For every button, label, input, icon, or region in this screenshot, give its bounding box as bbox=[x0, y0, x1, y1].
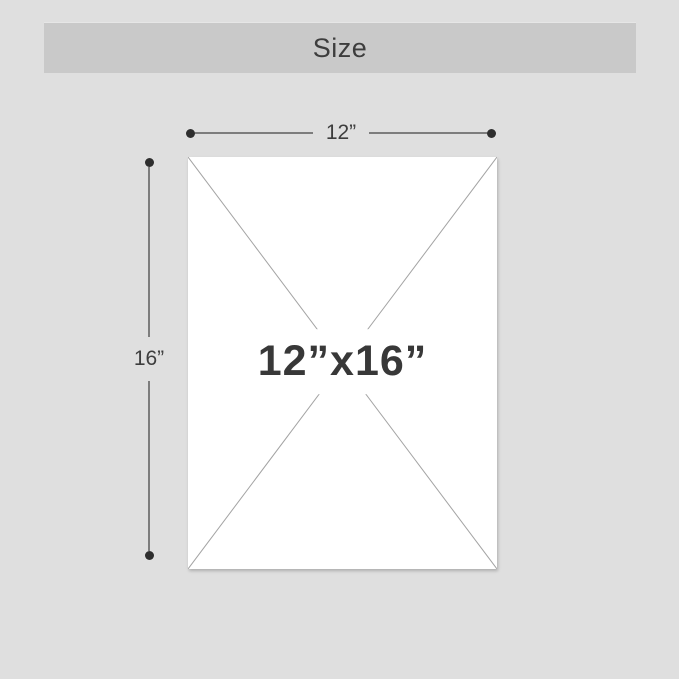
dimension-endpoint-dot bbox=[145, 158, 154, 167]
dimension-line bbox=[148, 167, 150, 337]
height-dimension-label: 16” bbox=[134, 347, 164, 371]
dimension-line bbox=[195, 132, 313, 134]
dimension-line bbox=[369, 132, 487, 134]
width-dimension: 12” bbox=[186, 124, 496, 142]
title-band: Size bbox=[44, 22, 636, 73]
height-dimension: 16” bbox=[134, 158, 164, 560]
width-dimension-label: 12” bbox=[326, 121, 356, 145]
dimension-endpoint-dot bbox=[145, 551, 154, 560]
size-diagram: Size 12” 16” 12”x16” bbox=[0, 0, 679, 679]
panel-size-label: 12”x16” bbox=[246, 329, 440, 394]
dimension-line bbox=[148, 381, 150, 551]
page-title: Size bbox=[313, 33, 368, 64]
dimension-endpoint-dot bbox=[186, 129, 195, 138]
size-panel: 12”x16” bbox=[188, 157, 497, 569]
dimension-endpoint-dot bbox=[487, 129, 496, 138]
